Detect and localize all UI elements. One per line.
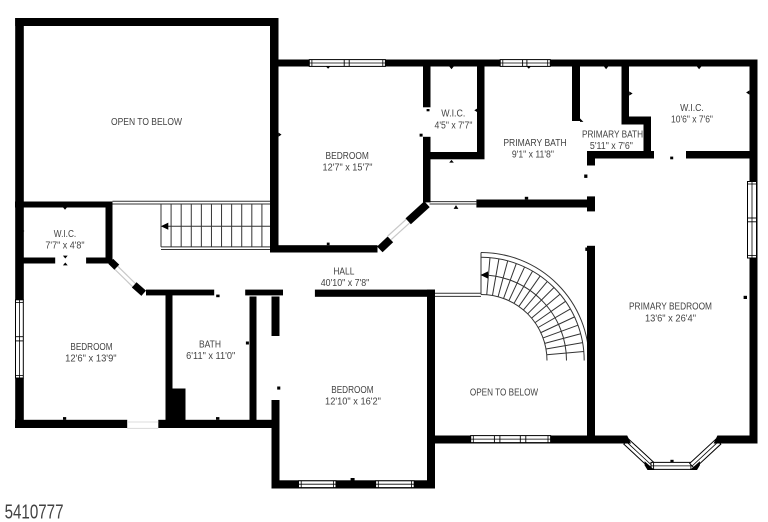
svg-text:OPEN TO BELOW: OPEN TO BELOW	[470, 388, 539, 399]
svg-text:12'6" x 13'9": 12'6" x 13'9"	[65, 353, 117, 364]
svg-text:5410777: 5410777	[5, 501, 64, 522]
svg-text:12'10" x 16'2": 12'10" x 16'2"	[325, 397, 381, 408]
svg-text:9'1" x 11'8": 9'1" x 11'8"	[512, 150, 554, 161]
svg-text:PRIMARY BATH: PRIMARY BATH	[503, 138, 566, 149]
svg-text:40'10" x 7'8": 40'10" x 7'8"	[321, 278, 370, 289]
svg-text:W.I.C.: W.I.C.	[54, 229, 76, 240]
svg-text:5'11" x 7'6": 5'11" x 7'6"	[590, 141, 633, 152]
svg-text:4'5" x 7'7": 4'5" x 7'7"	[435, 120, 473, 131]
svg-text:12'7" x 15'7": 12'7" x 15'7"	[323, 163, 373, 174]
svg-text:6'11" x 11'0": 6'11" x 11'0"	[186, 351, 236, 362]
svg-text:BATH: BATH	[199, 339, 221, 350]
svg-text:PRIMARY BEDROOM: PRIMARY BEDROOM	[629, 302, 712, 313]
svg-text:7'7" x 4'8": 7'7" x 4'8"	[45, 241, 85, 252]
svg-text:BEDROOM: BEDROOM	[326, 151, 369, 162]
svg-text:PRIMARY BATH: PRIMARY BATH	[582, 129, 643, 140]
svg-text:BEDROOM: BEDROOM	[331, 385, 373, 396]
svg-text:OPEN TO BELOW: OPEN TO BELOW	[111, 117, 182, 128]
svg-text:W.I.C.: W.I.C.	[680, 103, 704, 114]
svg-text:W.I.C.: W.I.C.	[441, 109, 465, 120]
svg-text:HALL: HALL	[333, 267, 354, 278]
svg-text:10'6" x 7'6": 10'6" x 7'6"	[671, 115, 713, 126]
svg-text:13'6" x 26'4": 13'6" x 26'4"	[645, 314, 696, 325]
svg-text:BEDROOM: BEDROOM	[70, 342, 112, 353]
